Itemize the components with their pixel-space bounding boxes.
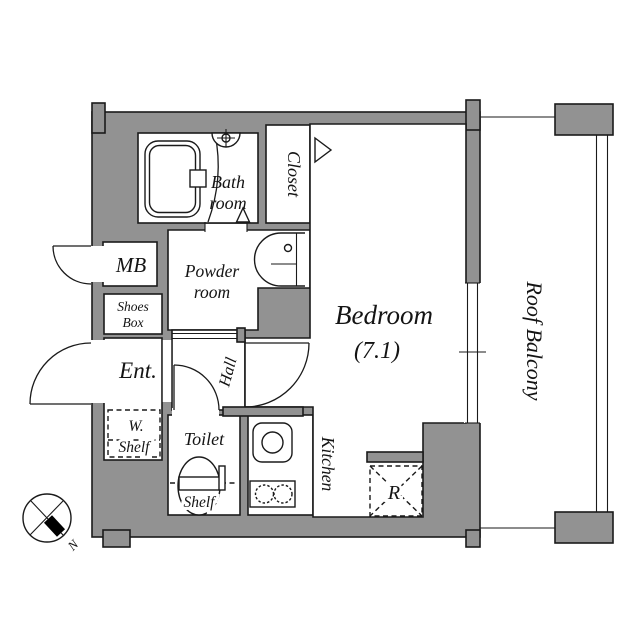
stove-burner-left-icon: [256, 485, 274, 503]
refrigerator-label: R: [387, 482, 400, 504]
entrance-hall-threshold: [163, 340, 171, 402]
bedroom-label: Bedroom: [335, 300, 433, 330]
bathroom-label-1: Bath: [211, 172, 245, 192]
window-gap: [464, 283, 481, 423]
entrance-door-arc: [30, 343, 91, 404]
wall-above-kitchen: [223, 407, 303, 416]
kitchen-label: Kitchen: [318, 436, 338, 492]
entrance-door-opening: [91, 340, 105, 403]
mb-door-opening: [91, 246, 105, 282]
toilet-label: Toilet: [184, 429, 225, 449]
pillar-top-left: [92, 103, 105, 133]
mb-door-arc: [53, 246, 91, 284]
meter-box-label: MB: [115, 253, 146, 277]
toilet-shelf-label: Shelf: [184, 494, 218, 511]
powder-sink-icon: [255, 233, 305, 286]
floor-plan-canvas: Bath room Closet Powder room MB Shoes Bo…: [0, 0, 640, 640]
powder-room-label-2: room: [194, 282, 230, 302]
balcony-pillar-bottom: [555, 512, 613, 543]
wall-bar-refrigerator-nook: [367, 452, 423, 462]
powder-sink-drain-icon: [285, 245, 292, 252]
toilet-seat-band-icon: [179, 477, 220, 490]
bathroom-label-2: room: [209, 193, 246, 213]
wall-stub-hall-bedroom: [237, 328, 245, 342]
roof-balcony-label: Roof Balcony: [522, 280, 547, 400]
compass: [23, 494, 71, 542]
w-shelf-label-2: Shelf: [119, 439, 153, 456]
floor-plan-page: Bath room Closet Powder room MB Shoes Bo…: [0, 0, 640, 640]
w-shelf-label-1: W.: [128, 418, 143, 435]
balcony-pillar-top: [555, 104, 613, 135]
compass-north-label: N: [64, 536, 82, 554]
bathtub-inner-icon: [150, 146, 196, 213]
bath-counter-icon: [190, 170, 206, 187]
bedroom-size-label: (7.1): [354, 338, 400, 364]
foot-bottom-left: [103, 530, 130, 547]
toilet-handle-icon: [219, 466, 225, 490]
pillar-top-right: [466, 100, 480, 130]
foot-bottom-right: [466, 530, 480, 547]
powder-room-label-1: Powder: [184, 261, 240, 281]
toilet-door-opening: [172, 408, 219, 416]
stove-burner-right-icon: [274, 485, 292, 503]
bathroom-door-opening: [205, 224, 247, 232]
shoes-box-label-2: Box: [123, 315, 144, 330]
closet-label: Closet: [284, 151, 304, 198]
kitchen-sink-bowl-icon: [262, 432, 283, 453]
entrance-label: Ent.: [118, 358, 157, 383]
shoes-box-label-1: Shoes: [117, 299, 149, 314]
